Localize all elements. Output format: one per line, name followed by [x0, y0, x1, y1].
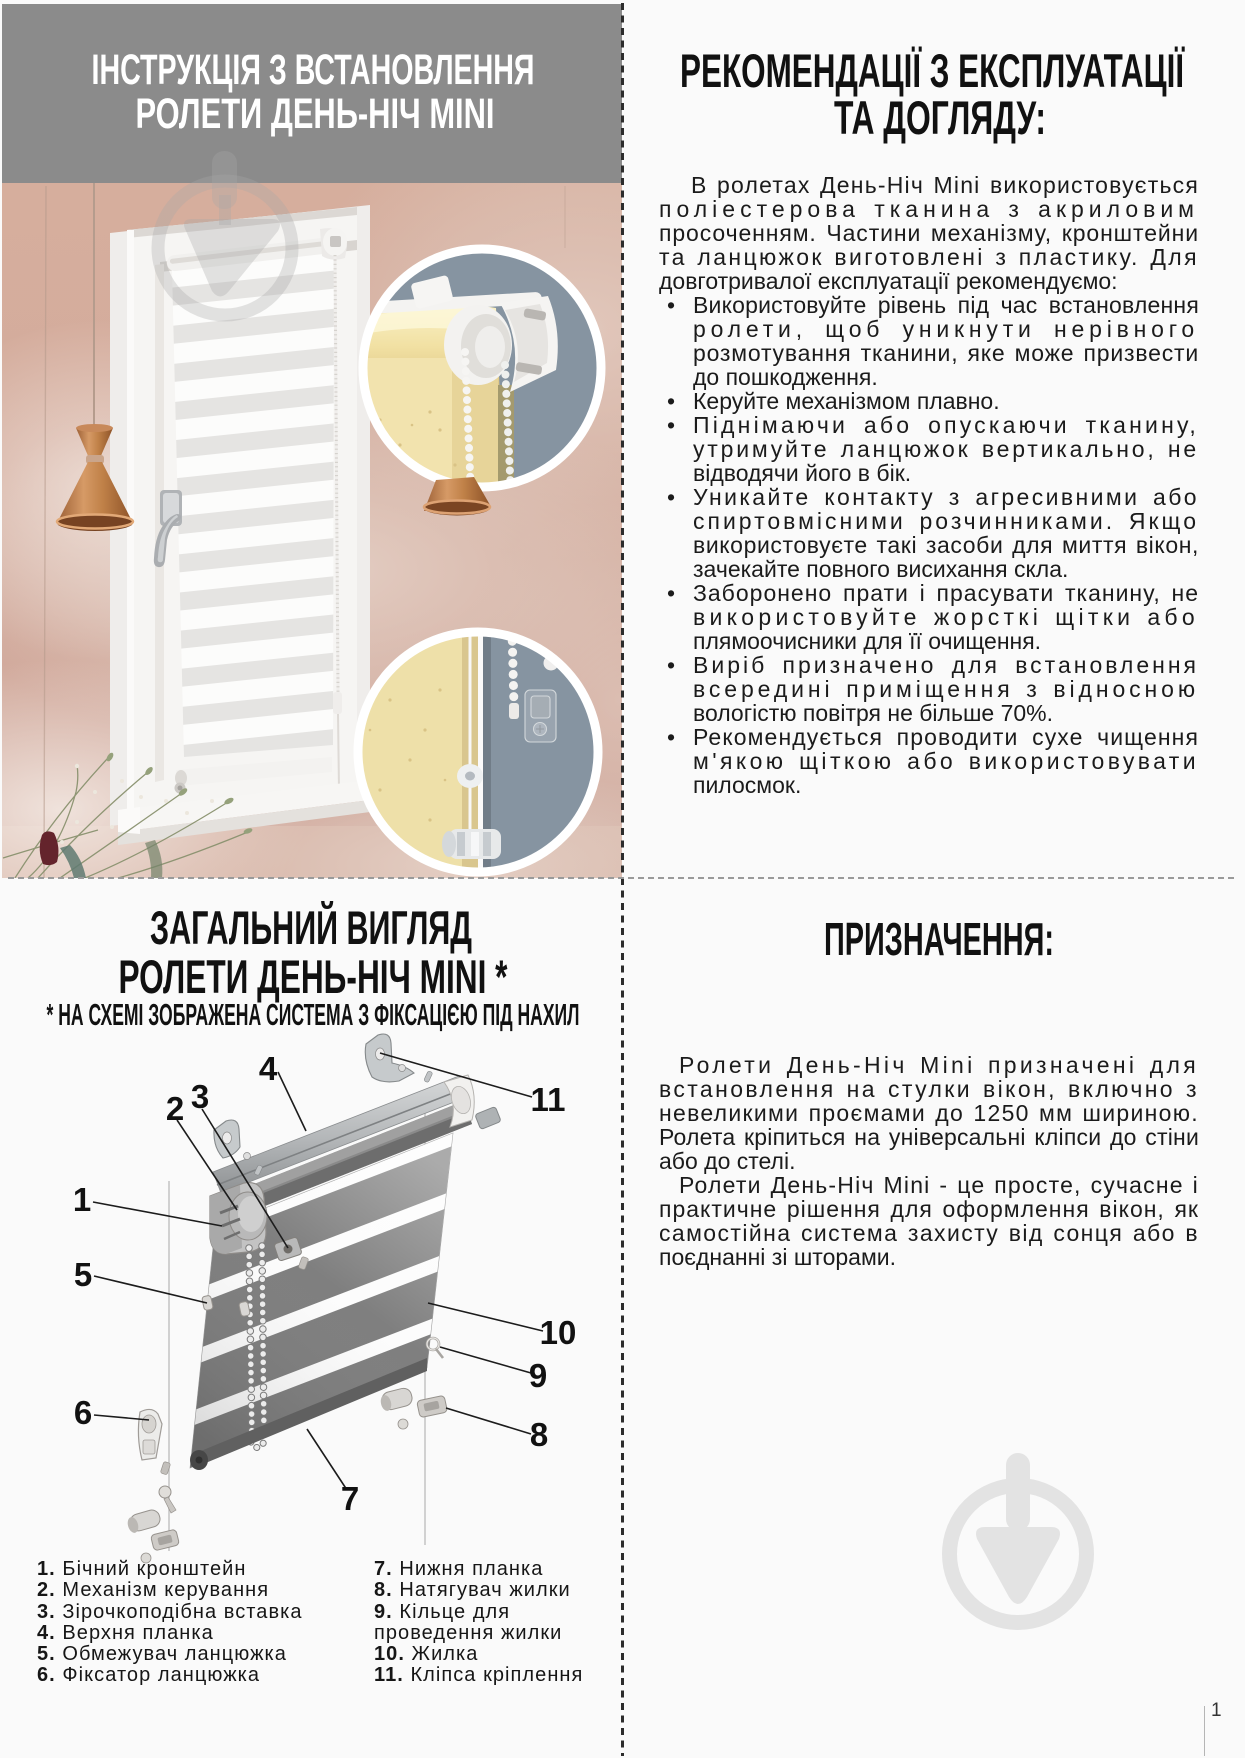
svg-text:11: 11	[531, 1081, 566, 1118]
svg-text:РОЛЕТИ ДЕНЬ-НІЧ MINI *: РОЛЕТИ ДЕНЬ-НІЧ MINI *	[119, 950, 508, 1003]
svg-text:РОЛЕТИ ДЕНЬ-НІЧ MINI: РОЛЕТИ ДЕНЬ-НІЧ MINI	[136, 90, 495, 138]
svg-text:6: 6	[74, 1394, 92, 1431]
svg-text:8: 8	[530, 1416, 548, 1453]
svg-text:1: 1	[73, 1181, 91, 1218]
svg-text:ПРИЗНАЧЕННЯ:: ПРИЗНАЧЕННЯ:	[824, 913, 1054, 965]
svg-text:РЕКОМЕНДАЦІЇ З ЕКСПЛУАТАЦІЇ: РЕКОМЕНДАЦІЇ З ЕКСПЛУАТАЦІЇ	[680, 44, 1185, 97]
svg-text:3: 3	[191, 1078, 209, 1115]
svg-text:9: 9	[529, 1357, 547, 1394]
svg-text:2: 2	[166, 1090, 184, 1127]
svg-text:4: 4	[259, 1050, 278, 1087]
svg-text:5: 5	[74, 1256, 92, 1293]
svg-text:ЗАГАЛЬНИЙ ВИГЛЯД: ЗАГАЛЬНИЙ ВИГЛЯД	[150, 901, 472, 954]
svg-text:7: 7	[341, 1480, 359, 1517]
svg-text:ТА ДОГЛЯДУ:: ТА ДОГЛЯДУ:	[834, 91, 1046, 144]
svg-text:10: 10	[540, 1314, 577, 1351]
svg-text:ІНСТРУКЦІЯ З ВСТАНОВЛЕННЯ: ІНСТРУКЦІЯ З ВСТАНОВЛЕННЯ	[92, 46, 535, 94]
